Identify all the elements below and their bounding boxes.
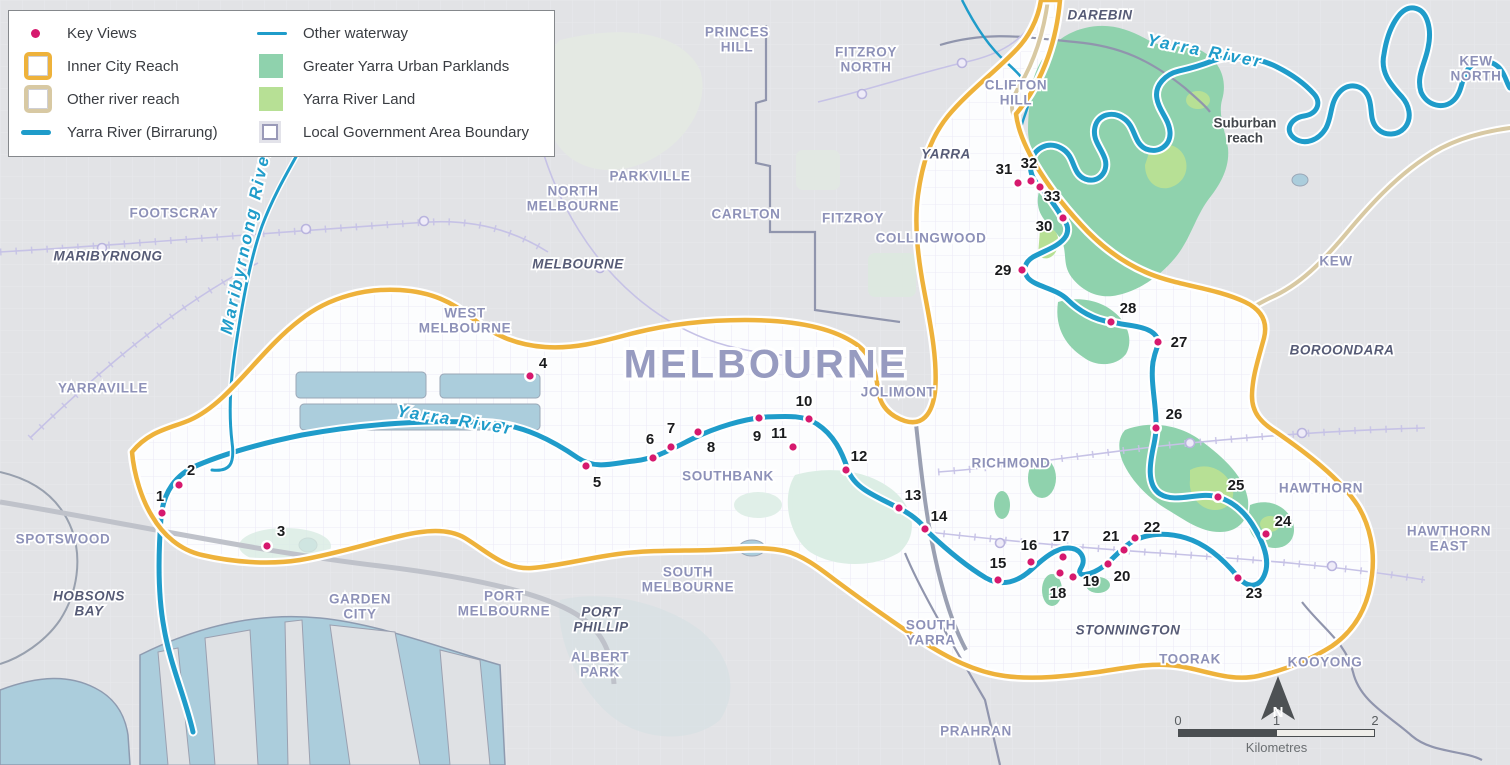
key-view-dot-25[interactable] [1213,492,1223,502]
key-view-number-23: 23 [1246,585,1263,602]
lga-label-yarra: YARRA [921,147,971,162]
lga-label-boroondara: BOROONDARA [1290,343,1395,358]
key-view-number-9: 9 [753,428,761,445]
key-view-number-1: 1 [156,488,164,505]
inner-city-reach-box-icon [21,54,67,78]
other-river-reach-box-icon [21,87,67,111]
legend: Key Views Other waterway Inner City Reac… [8,10,555,157]
yarra-river-land-fill-icon [257,87,303,111]
key-view-dot-22[interactable] [1130,533,1140,543]
suburb-label-kew: KEW [1319,254,1352,269]
key-view-number-14: 14 [931,508,948,525]
legend-label-inner-city-reach: Inner City Reach [67,58,257,75]
suburb-label-carlton: CARLTON [712,207,781,222]
key-view-dot-13[interactable] [894,503,904,513]
key-view-number-7: 7 [667,420,675,437]
legend-label-key-views: Key Views [67,25,257,42]
key-view-number-13: 13 [905,487,922,504]
legend-label-yarra-river-land: Yarra River Land [303,91,544,108]
scale-tick-0: 0 [1174,713,1181,728]
key-view-number-5: 5 [593,474,601,491]
key-view-dot-24[interactable] [1261,529,1271,539]
suburb-label-south-yarra: SOUTHYARRA [906,618,956,648]
suburb-label-collingwood: COLLINGWOOD [876,231,987,246]
key-view-number-26: 26 [1166,406,1183,423]
lga-label-melbourne: MELBOURNE [532,257,624,272]
key-view-dot-9[interactable] [754,413,764,423]
key-view-dot-23[interactable] [1233,573,1243,583]
key-view-number-33: 33 [1044,188,1061,205]
map-stage[interactable]: PRINCESHILLFITZROYNORTHDAREBINCLIFTONHIL… [0,0,1510,765]
key-view-dot-28[interactable] [1106,317,1116,327]
key-view-number-32: 32 [1021,155,1038,172]
suburb-label-fitzroy-north: FITZROYNORTH [835,45,897,75]
key-view-dot-5[interactable] [581,461,591,471]
suburb-label-prahran: PRAHRAN [940,724,1012,739]
key-view-number-6: 6 [646,431,654,448]
key-view-dot-3[interactable] [262,541,272,551]
legend-label-lga-boundary: Local Government Area Boundary [303,124,544,141]
lga-boundary-box-icon [257,120,303,144]
key-view-number-4: 4 [539,355,548,372]
other-waterway-line-icon [257,21,303,45]
key-view-dot-8[interactable] [693,427,703,437]
key-view-number-3: 3 [277,523,285,540]
key-view-dot-18[interactable] [1055,568,1065,578]
suburb-label-yarraville: YARRAVILLE [58,381,148,396]
suburb-label-parkville: PARKVILLE [610,169,691,184]
legend-label-other-river-reach: Other river reach [67,91,257,108]
key-view-number-31: 31 [996,161,1013,178]
key-view-number-10: 10 [796,393,813,410]
lga-label-stonnington: STONNINGTON [1076,623,1181,638]
key-view-number-19: 19 [1083,573,1100,590]
scale-unit: Kilometres [1178,740,1375,755]
key-view-number-25: 25 [1228,477,1245,494]
suburb-label-southbank: SOUTHBANK [682,469,774,484]
suburb-label-toorak: TOORAK [1159,652,1221,667]
key-view-dot-1[interactable] [157,508,167,518]
suburb-label-jolimont: JOLIMONT [861,385,936,400]
key-view-dot-17[interactable] [1058,552,1068,562]
key-view-dot-29[interactable] [1017,265,1027,275]
key-view-number-20: 20 [1114,568,1131,585]
legend-label-other-waterway: Other waterway [303,25,544,42]
key-view-dot-10[interactable] [804,414,814,424]
yarra-river-line-icon [21,120,67,144]
key-view-number-2: 2 [187,462,195,479]
key-view-dot-20[interactable] [1103,559,1113,569]
key-view-dot-31[interactable] [1013,178,1023,188]
key-view-dot-7[interactable] [666,442,676,452]
key-view-number-30: 30 [1036,218,1053,235]
suburb-label-hawthorn: HAWTHORN [1279,481,1363,496]
key-view-dot-12[interactable] [841,465,851,475]
key-view-number-16: 16 [1021,537,1038,554]
lga-label-darebin: DAREBIN [1067,8,1132,23]
suburb-label-spotswood: SPOTSWOOD [16,532,111,547]
key-view-dot-15[interactable] [993,575,1003,585]
suburb-label-richmond: RICHMOND [971,456,1050,471]
key-view-dot-19[interactable] [1068,572,1078,582]
key-view-number-11: 11 [771,425,787,442]
key-view-number-28: 28 [1120,300,1137,317]
city-label-melbourne: MELBOURNE [624,343,909,387]
legend-label-yarra-river: Yarra River (Birrarung) [67,124,257,141]
lga-label-maribyrnong: MARIBYRNONG [54,249,163,264]
key-view-number-17: 17 [1053,528,1070,545]
key-view-number-15: 15 [990,555,1007,572]
key-view-dot-14[interactable] [920,524,930,534]
key-view-dot-21[interactable] [1119,545,1129,555]
domain-parkland [734,492,782,518]
suburb-label-fitzroy: FITZROY [822,211,884,226]
key-view-dot-2[interactable] [174,480,184,490]
key-view-number-24: 24 [1275,513,1292,530]
key-view-number-18: 18 [1050,585,1067,602]
suburb-label-footscray: FOOTSCRAY [130,206,219,221]
suburb-label-kooyong: KOOYONG [1288,655,1363,670]
legend-label-parklands: Greater Yarra Urban Parklands [303,58,544,75]
parklands-fill-icon [257,54,303,78]
scale-tick-2: 2 [1371,713,1378,728]
key-view-dot-11[interactable] [788,442,798,452]
key-view-dot-16[interactable] [1026,557,1036,567]
north-arrow-label: N [1273,704,1284,721]
key-view-number-22: 22 [1144,519,1161,536]
key-views-dot-icon [21,21,67,45]
scale-bar-rule [1178,729,1375,737]
key-view-number-8: 8 [707,439,715,456]
north-arrow: N [1258,674,1298,722]
key-view-dot-6[interactable] [648,453,658,463]
key-view-dot-27[interactable] [1153,337,1163,347]
key-view-number-29: 29 [995,262,1012,279]
key-view-number-27: 27 [1171,334,1188,351]
key-view-dot-4[interactable] [525,371,535,381]
key-view-number-12: 12 [851,448,868,465]
key-view-dot-32[interactable] [1026,176,1036,186]
key-view-number-21: 21 [1103,528,1120,545]
key-view-dot-26[interactable] [1151,423,1161,433]
key-view-dot-30[interactable] [1058,213,1068,223]
